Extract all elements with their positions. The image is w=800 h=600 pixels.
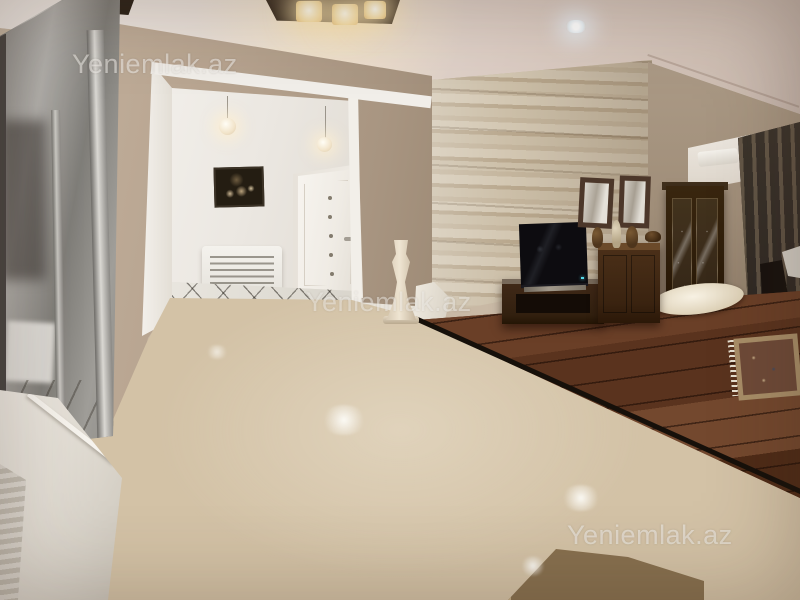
decor-vase <box>612 220 621 248</box>
mirror-frame <box>0 34 6 450</box>
pendant-globe-lamp <box>219 118 236 135</box>
plinth-louver <box>0 464 30 600</box>
door-dot <box>329 234 333 238</box>
floor-glare <box>520 556 546 576</box>
floor-glare <box>205 345 229 359</box>
tv-standby-led <box>581 277 584 279</box>
mirror-reflection <box>0 120 46 280</box>
pendant-cord <box>325 106 326 139</box>
floor-glare <box>320 405 368 435</box>
tv-stand-shelf <box>516 294 590 313</box>
light-bulb <box>296 1 322 22</box>
tv-screen <box>519 222 588 288</box>
pedestal-plant <box>370 208 432 250</box>
watermark: Yeniemlak.az <box>72 49 238 80</box>
door-dot <box>328 196 332 200</box>
door-dot <box>328 215 332 219</box>
mirror-reflection-radiator <box>4 321 55 383</box>
wall-picture <box>213 166 264 207</box>
watermark: Yeniemlak.az <box>567 520 733 551</box>
sideboard-door <box>631 255 655 313</box>
sideboard-door <box>603 255 627 313</box>
decor-vase <box>592 227 603 248</box>
door-dot <box>330 272 334 276</box>
decor-bowl <box>645 231 661 242</box>
oriental-rug <box>733 333 800 400</box>
flower-arrangement <box>650 142 730 192</box>
door-dot <box>329 253 333 257</box>
real-estate-photo: Yeniemlak.az Yeniemlak.az Yeniemlak.az <box>0 0 800 600</box>
sideboard <box>598 243 660 323</box>
dresser-mirror <box>618 175 651 228</box>
pendant-globe-lamp <box>317 137 332 152</box>
recessed-spotlight <box>566 20 586 33</box>
decor-vase <box>626 226 638 248</box>
light-bulb <box>364 1 386 19</box>
dresser-mirror <box>578 177 615 229</box>
light-bulb <box>332 4 358 25</box>
pendant-cord <box>227 96 228 120</box>
watermark: Yeniemlak.az <box>306 287 472 318</box>
floor-glare <box>560 485 602 511</box>
